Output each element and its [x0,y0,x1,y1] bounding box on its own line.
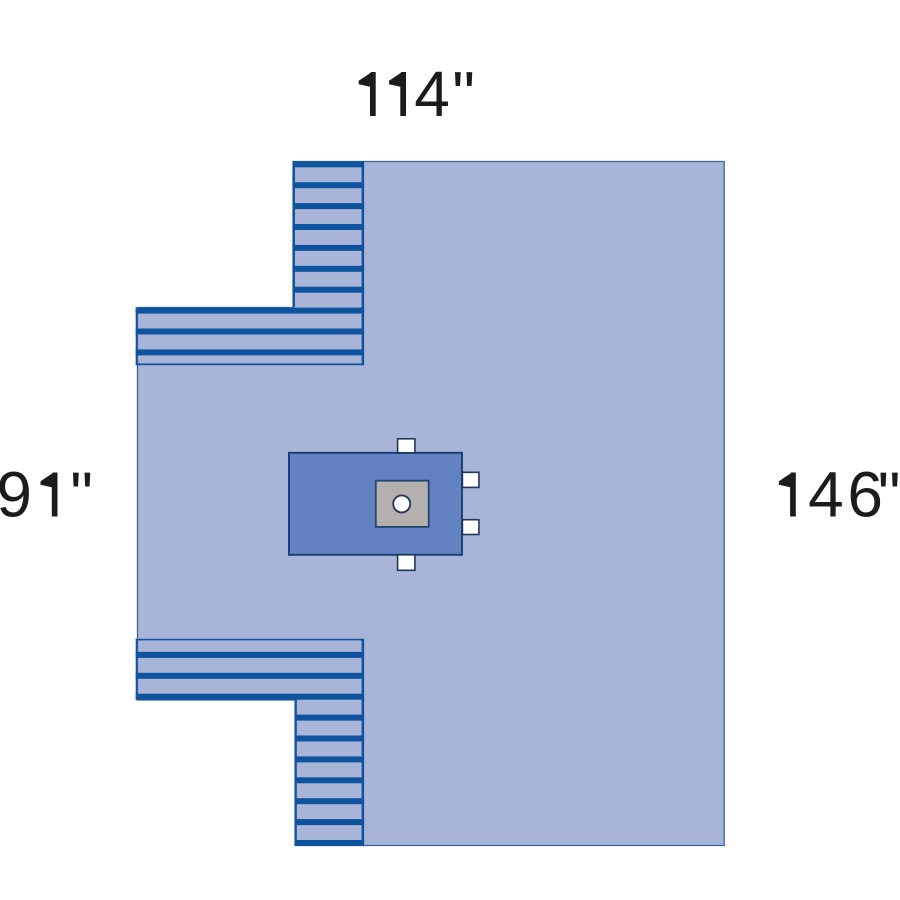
svg-text:": " [878,459,900,531]
svg-text:": " [70,459,93,531]
svg-text:": " [452,58,475,130]
svg-text:4: 4 [414,58,450,130]
svg-text:9: 9 [0,459,32,531]
svg-text:4: 4 [808,459,844,531]
